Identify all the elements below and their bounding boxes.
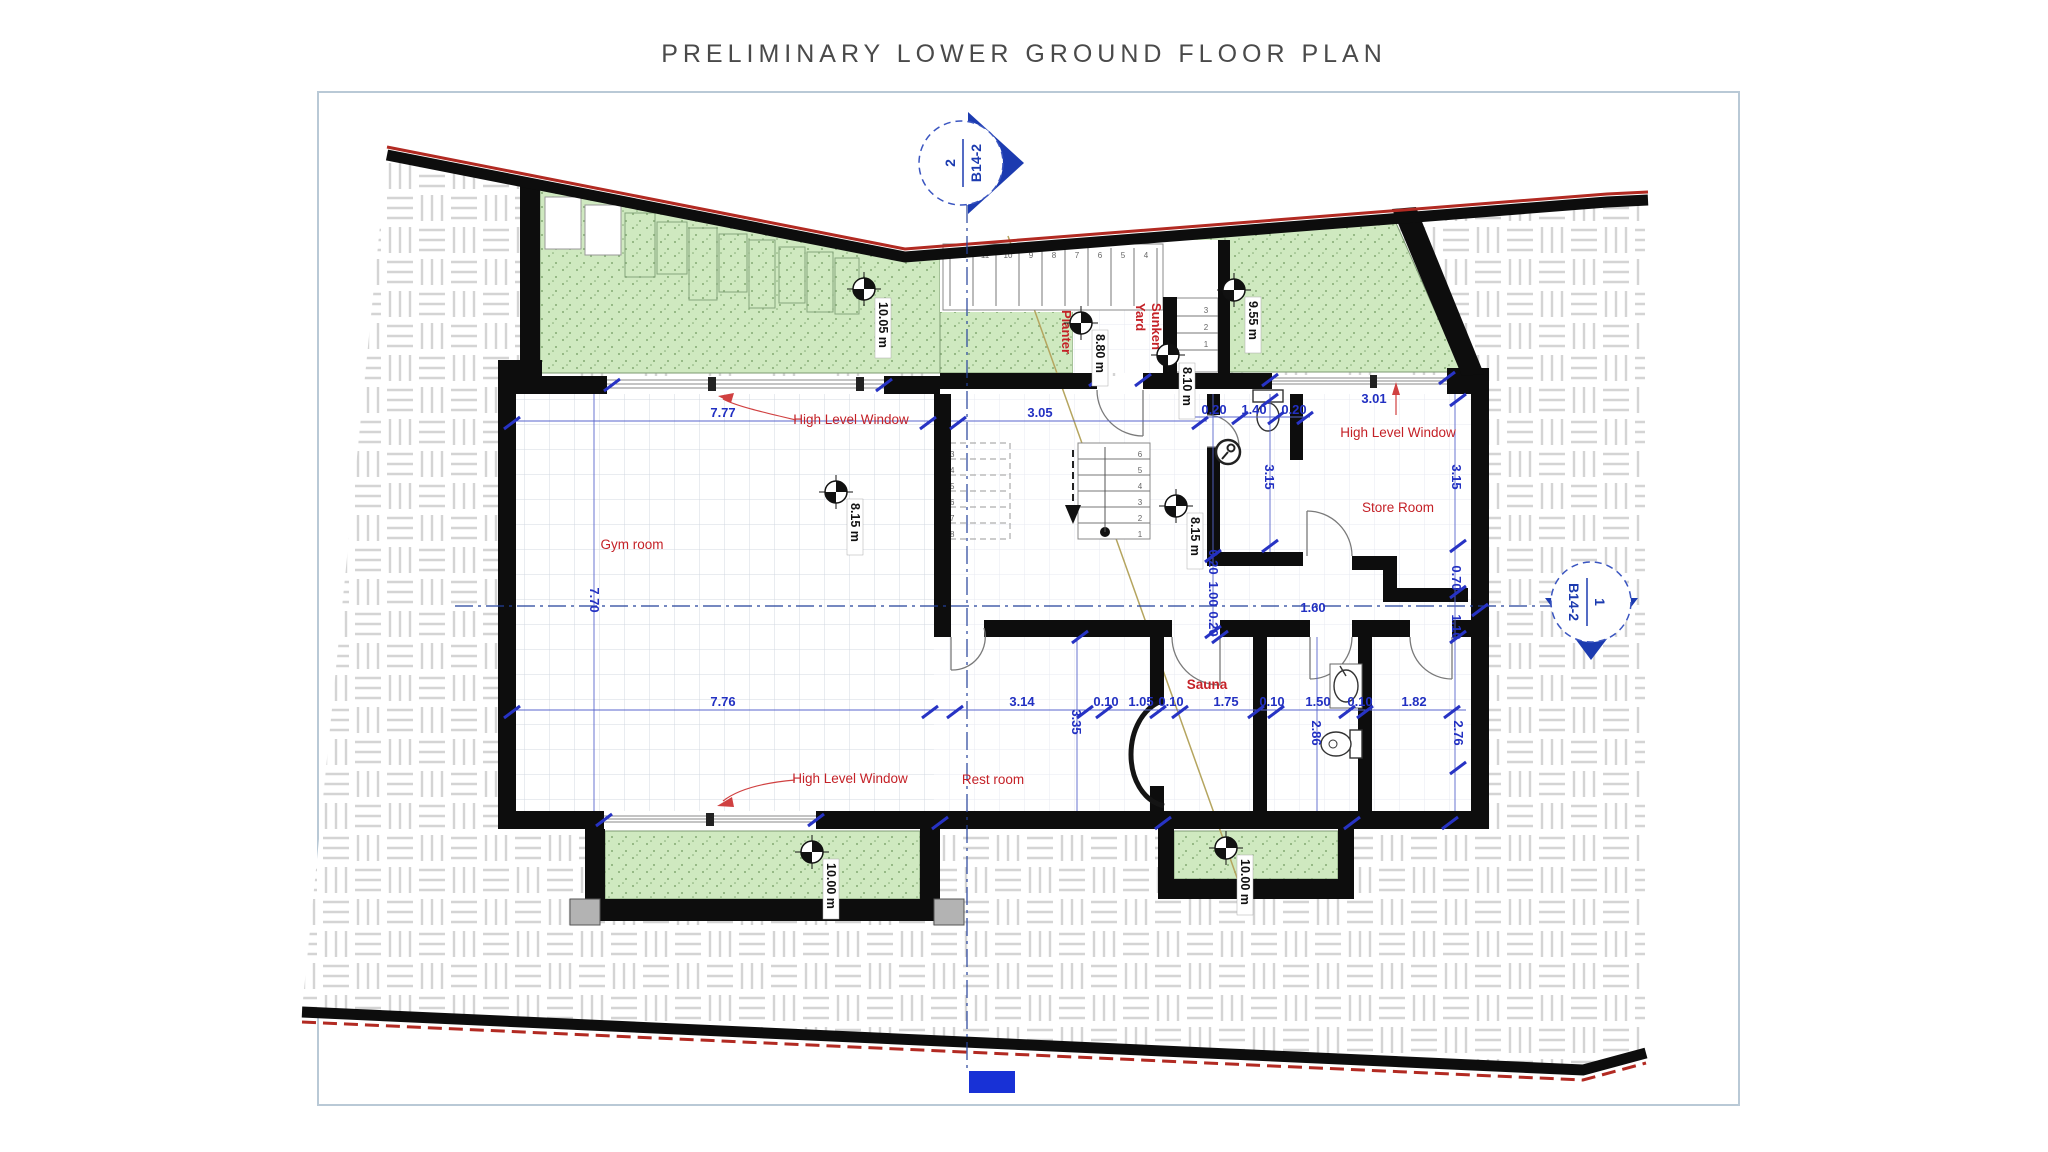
dim-cl1: 0.20 [1206,549,1221,574]
dim-wc3: 0.20 [1281,402,1306,417]
dim-rest-w: 3.14 [1009,694,1035,709]
dim-gym-top: 7.77 [710,405,735,420]
dim-s7: 0.10 [1347,694,1372,709]
dim-corr-w: 1.60 [1300,600,1325,615]
svg-text:3: 3 [1204,306,1209,315]
room-label-rest: Rest room [962,772,1024,787]
dim-s4: 1.75 [1213,694,1238,709]
svg-text:4: 4 [1138,482,1143,491]
level-planter-br: 10.00 m [1238,859,1252,905]
level-planter-bl: 10.00 m [824,863,838,909]
floor-plan-drawing: PRELIMINARY LOWER GROUND FLOOR PLAN [0,0,2048,1152]
label-high-level-window-top: High Level Window [793,412,909,427]
svg-text:5: 5 [1138,466,1143,475]
label-high-level-window-bottom: High Level Window [792,771,908,786]
level-planter-top: 10.05 m [876,302,890,348]
dim-wc1: 0.20 [1201,402,1226,417]
bathroom-toilet [1321,730,1362,758]
section-marker-right-number: 1 [1592,598,1608,606]
dim-gym-left: 7.70 [587,587,602,612]
room-label-sauna: Sauna [1187,677,1228,692]
high-level-window-store [1272,375,1447,388]
svg-text:7: 7 [1075,251,1080,260]
svg-text:5: 5 [1121,251,1126,260]
section-marker-top-sheet: B14-2 [968,144,984,182]
planter-corner-pad-right [934,899,964,925]
page-title: PRELIMINARY LOWER GROUND FLOOR PLAN [661,40,1387,68]
section-marker-top: 2 B14-2 [919,112,1024,214]
svg-text:1: 1 [1204,340,1209,349]
room-label-gym: Gym room [600,537,663,552]
svg-text:2: 2 [1204,323,1209,332]
dim-s6: 1.50 [1305,694,1330,709]
svg-text:6: 6 [1138,450,1143,459]
label-sunken: Sunken [1149,303,1164,350]
dim-stair-top: 3.05 [1027,405,1052,420]
planter-corner-pad-left [570,899,600,925]
section-marker-top-number: 2 [942,159,958,167]
dim-store-top: 3.01 [1361,391,1386,406]
level-stair: 8.15 m [1188,517,1202,556]
dim-s1: 0.10 [1093,694,1118,709]
svg-text:8: 8 [1052,251,1057,260]
dim-cl3: 0.20 [1206,611,1221,636]
dim-sauna-h: 2.86 [1309,720,1324,745]
dim-rest-h: 3.35 [1069,709,1084,734]
level-yard-mid: 8.80 m [1093,334,1107,373]
svg-text:4: 4 [1144,251,1149,260]
dim-notch: 0.70 [1449,565,1464,590]
level-yard-right: 9.55 m [1246,301,1260,340]
building-interior [498,376,1489,829]
section-line-end-bar [969,1071,1015,1093]
level-gym: 8.15 m [848,503,862,542]
dim-wc-h: 3.15 [1262,464,1277,489]
svg-text:1: 1 [1138,530,1143,539]
floor-drain-symbol [1216,440,1240,464]
section-marker-right-sheet: B14-2 [1566,583,1582,621]
dim-s8: 1.82 [1401,694,1426,709]
dim-notch2: 1.10 [1449,614,1464,639]
svg-text:3: 3 [1138,498,1143,507]
dim-s2: 1.05 [1128,694,1153,709]
label-high-level-window-store: High Level Window [1340,425,1456,440]
dim-wc2: 1.40 [1241,402,1266,417]
dim-store-h: 3.15 [1449,464,1464,489]
svg-text:6: 6 [1098,251,1103,260]
dim-s5: 0.10 [1259,694,1284,709]
internal-stair-lower-flight: 6 5 4 3 2 1 [1078,443,1150,539]
label-yard: Yard [1133,303,1148,331]
room-label-store: Store Room [1362,500,1434,515]
svg-text:2: 2 [1138,514,1143,523]
dim-cl2: 1.00 [1206,581,1221,606]
level-yard-door: 8.10 m [1180,367,1194,406]
floor-plan-page: PRELIMINARY LOWER GROUND FLOOR PLAN [0,0,2048,1152]
high-level-window-bottom [604,813,816,826]
dim-gym-bottom: 7.76 [710,694,735,709]
dim-corr-h: 2.76 [1451,720,1466,745]
dim-s3: 0.10 [1158,694,1183,709]
high-level-window-top [607,377,884,391]
